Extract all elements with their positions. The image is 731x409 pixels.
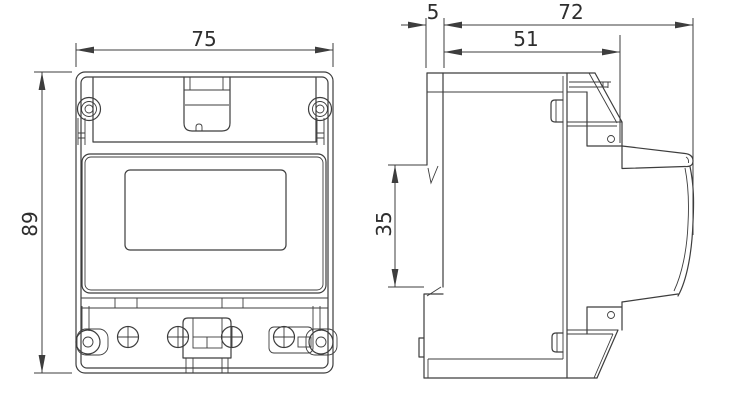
hanger-tab: [184, 77, 230, 131]
side-seal-lug-bottom: [552, 333, 563, 352]
dimension-clip-depth: 5: [401, 0, 444, 68]
terminal-screws: [118, 327, 314, 354]
side-bottom-inner-line: [428, 359, 563, 378]
terminal-screw: [222, 327, 243, 348]
nameplate-recess: [93, 78, 316, 142]
terminal-screw: [274, 327, 295, 348]
body-depth-label: 51: [513, 27, 538, 51]
lcd-display-window: [125, 170, 286, 250]
dimension-front-height: 89: [18, 72, 72, 373]
bottom-right-corner-screw: [306, 306, 337, 355]
front-cover-bulge: [674, 167, 694, 297]
dimension-total-depth: 72: [444, 0, 693, 235]
back-clip-bottom-edge: [424, 294, 443, 378]
side-view: [419, 73, 694, 378]
front-height-label: 89: [18, 211, 42, 236]
din-clip-tongue-bottom: [427, 287, 441, 296]
din-clip-tongue-top: [428, 166, 438, 183]
technical-drawing-canvas: 75 89 5 72 51: [0, 0, 731, 409]
side-seal-lug-top: [551, 100, 563, 122]
dimensions: 75 89 5 72 51: [18, 0, 693, 373]
front-width-label: 75: [191, 27, 216, 51]
total-depth-label: 72: [558, 0, 583, 24]
top-terminal-cover: [567, 73, 622, 146]
clip-depth-label: 5: [427, 0, 440, 24]
front-outer-case: [76, 72, 333, 373]
terminal-cover-seam: [81, 298, 328, 308]
front-panel: [82, 154, 326, 293]
dimension-front-width: 75: [76, 27, 333, 67]
din-clip-tab-front: [183, 318, 231, 373]
bottom-terminal-cover: [567, 294, 678, 378]
dimension-din-slot: 35: [372, 165, 427, 287]
din-slot-label: 35: [372, 211, 396, 236]
clip-pull-tab: [419, 338, 424, 357]
front-panel-inner: [85, 157, 323, 290]
front-view: [76, 72, 337, 373]
front-cover-flap: [622, 146, 693, 169]
front-inner-case: [81, 77, 328, 368]
dimension-drawing-svg: 75 89 5 72 51: [0, 0, 731, 409]
terminal-screw: [168, 327, 189, 348]
terminal-screw: [118, 327, 139, 348]
